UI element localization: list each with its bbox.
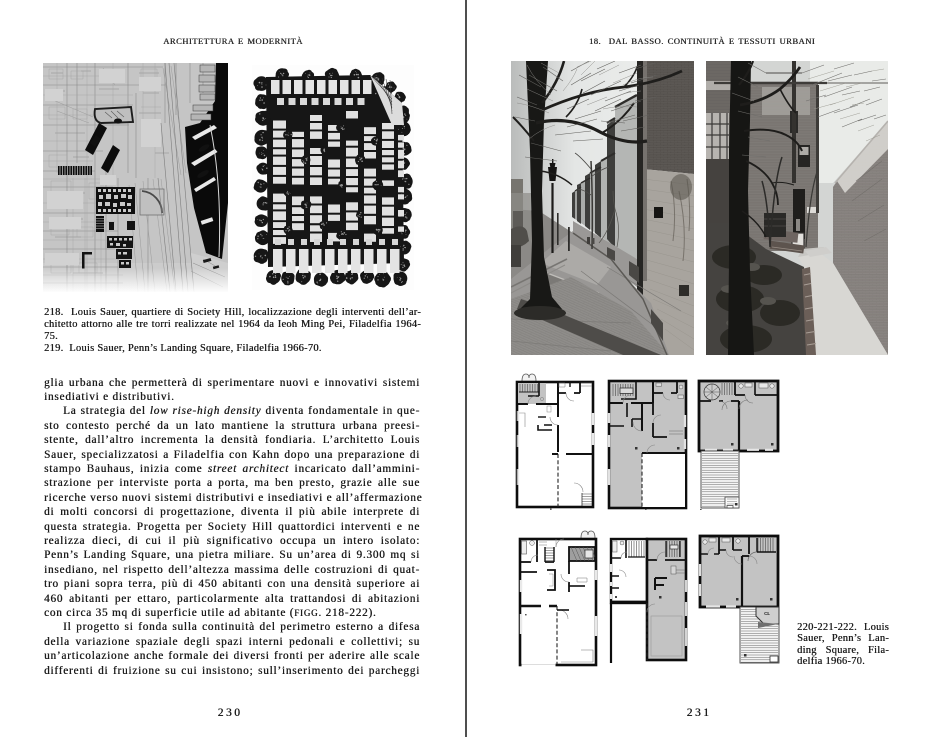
svg-text:CL: CL	[764, 611, 770, 616]
